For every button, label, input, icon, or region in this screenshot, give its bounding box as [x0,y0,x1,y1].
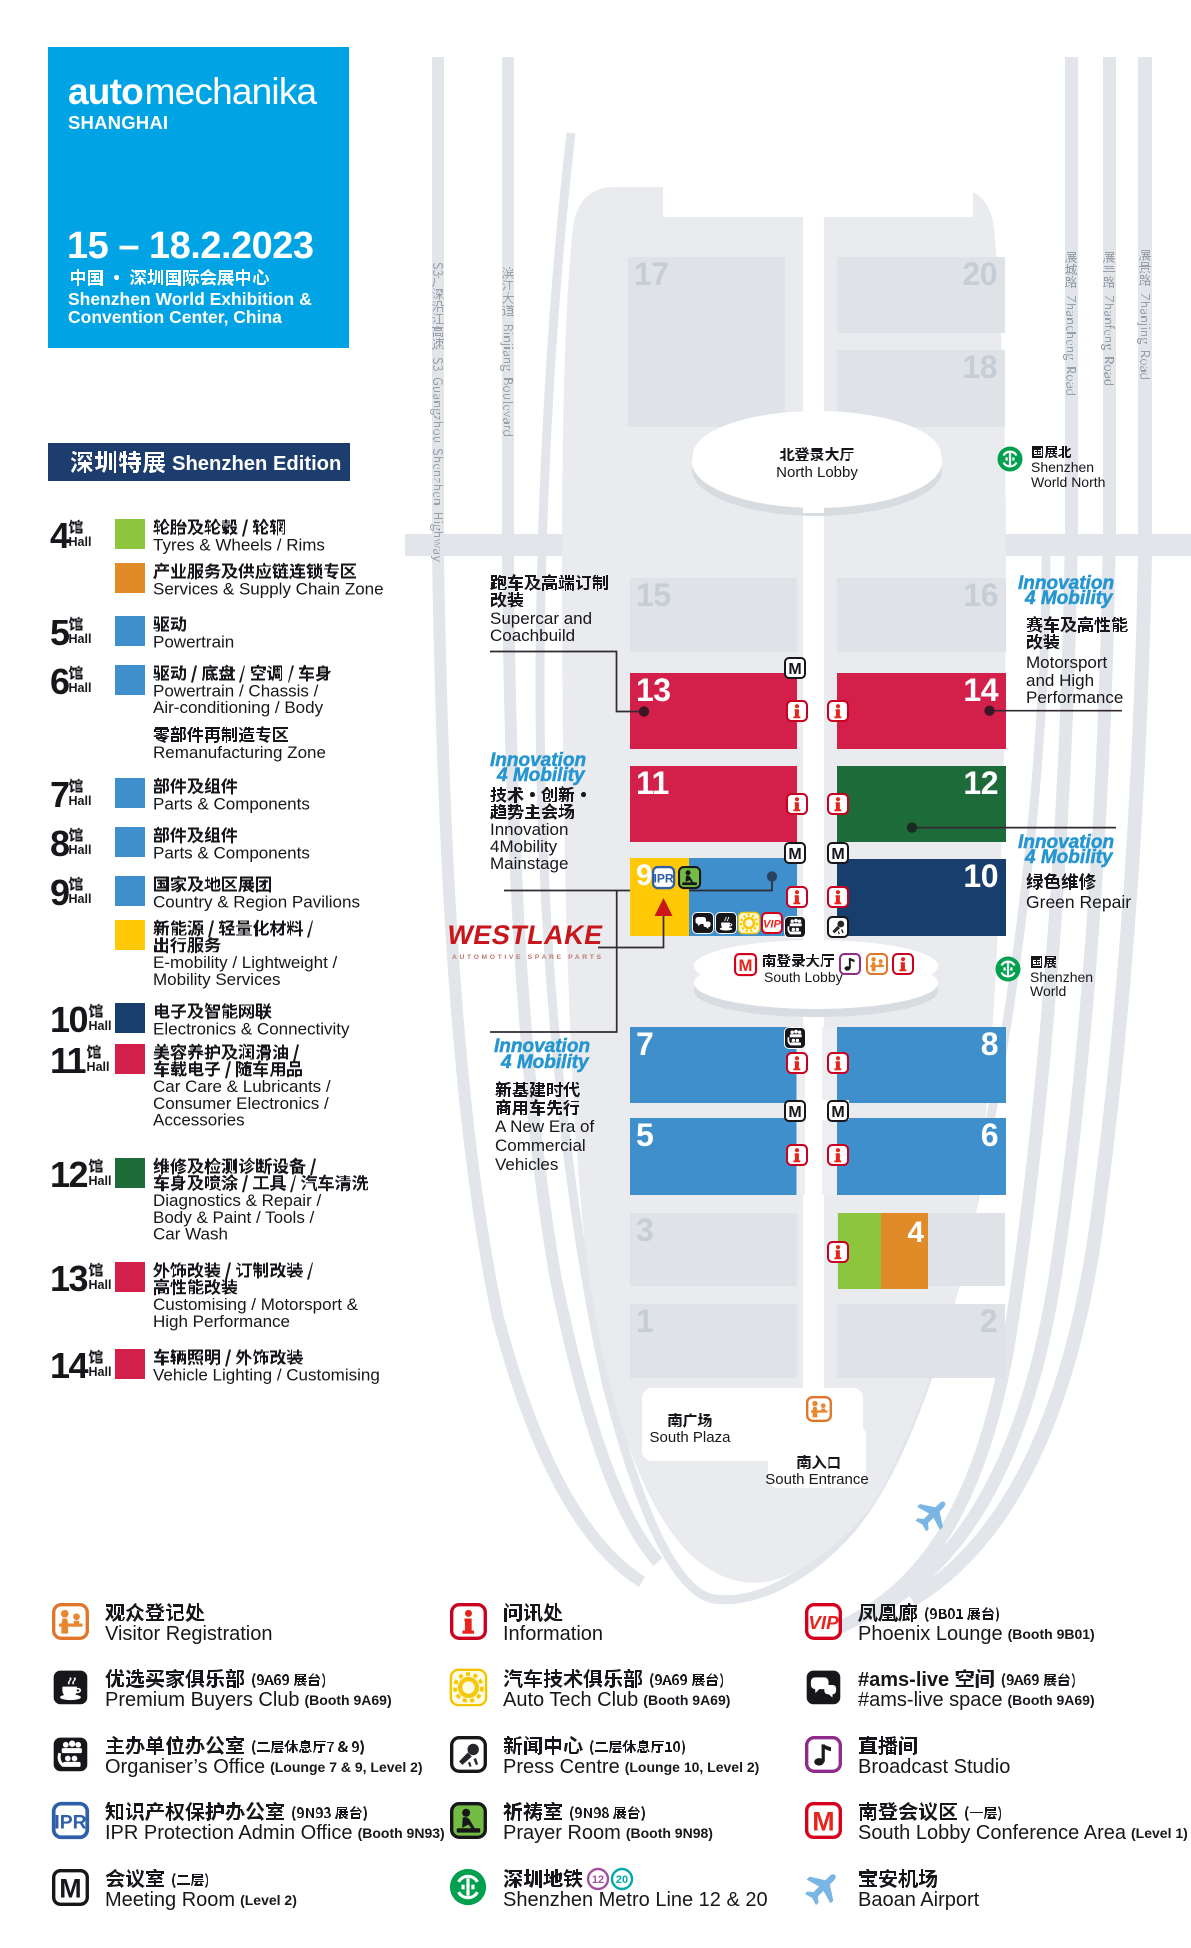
svg-text:South Lobby: South Lobby [764,969,843,985]
svg-text:Shenzhen: Shenzhen [1031,459,1094,475]
svg-text:Shenzhen Edition: Shenzhen Edition [172,453,341,475]
svg-text:Broadcast Studio: Broadcast Studio [858,1756,1010,1778]
svg-text:Powertrain: Powertrain [153,632,234,651]
svg-text:(Level 2): (Level 2) [240,1892,297,1908]
svg-text:Hall: Hall [89,1174,112,1188]
svg-text:(Booth 9N93): (Booth 9N93) [358,1825,445,1841]
svg-text:20: 20 [616,1874,628,1886]
svg-text:Mobility Services: Mobility Services [153,970,281,989]
svg-text:Hall: Hall [69,632,92,646]
svg-text:20: 20 [962,256,997,292]
svg-text:6: 6 [50,661,69,702]
svg-text:Green Repair: Green Repair [1026,892,1131,912]
svg-text:Vehicle Lighting / Customising: Vehicle Lighting / Customising [153,1365,380,1384]
svg-text:(Lounge 7 & 9, Level 2): (Lounge 7 & 9, Level 2) [270,1759,422,1775]
svg-text:4 Mobility: 4 Mobility [1024,588,1114,609]
svg-text:A New Era of: A New Era of [495,1117,594,1136]
svg-text:16: 16 [963,577,998,613]
svg-text:South Plaza: South Plaza [650,1429,732,1446]
svg-text:Accessories: Accessories [153,1111,245,1130]
svg-text:(Booth 9A69): (Booth 9A69) [305,1692,392,1708]
svg-text:11: 11 [50,1040,87,1081]
svg-text:2: 2 [980,1303,997,1339]
svg-text:Services & Supply Chain Zone: Services & Supply Chain Zone [153,579,384,598]
svg-text:6: 6 [981,1117,998,1153]
svg-text:South Entrance: South Entrance [765,1471,868,1488]
svg-text:Parts & Components: Parts & Components [153,843,310,862]
svg-text:8: 8 [981,1026,998,1062]
svg-text:(Booth 9A69): (Booth 9A69) [1008,1692,1095,1708]
svg-text:15: 15 [636,577,671,613]
svg-text:8: 8 [50,823,69,864]
svg-text:Organiser’s Office: Organiser’s Office [105,1756,265,1778]
svg-text:Commercial: Commercial [495,1136,586,1155]
svg-text:Visitor Registration: Visitor Registration [105,1623,272,1645]
svg-text:Meeting Room: Meeting Room [105,1889,235,1911]
svg-text:9: 9 [636,859,653,892]
svg-text:Convention Center, China: Convention Center, China [68,307,282,327]
svg-text:Auto Tech Club: Auto Tech Club [503,1689,638,1711]
svg-text:Coachbuild: Coachbuild [490,626,575,645]
svg-text:13: 13 [636,672,671,708]
svg-text:4 Mobility: 4 Mobility [496,765,586,786]
svg-text:12: 12 [963,765,998,801]
svg-text:Shenzhen World Exhibition &: Shenzhen World Exhibition & [68,289,312,309]
svg-text:IPR Protection Admin Office: IPR Protection Admin Office [105,1822,353,1844]
svg-text:4 Mobility: 4 Mobility [1024,847,1114,868]
svg-text:Hall: Hall [89,1278,112,1292]
svg-text:15 – 18.2.2023: 15 – 18.2.2023 [67,225,314,267]
svg-text:(Lounge 10, Level 2): (Lounge 10, Level 2) [625,1759,760,1775]
svg-text:Hall: Hall [87,1060,110,1074]
svg-text:10: 10 [963,858,998,894]
svg-text:Shenzhen Metro Line 12 & 20: Shenzhen Metro Line 12 & 20 [503,1889,768,1911]
svg-text:3: 3 [636,1212,653,1248]
svg-text:Hall: Hall [69,892,92,906]
svg-text:Car Wash: Car Wash [153,1225,228,1244]
svg-text:14: 14 [50,1345,89,1386]
svg-text:7: 7 [636,1026,653,1062]
svg-text:Prayer Room: Prayer Room [503,1822,621,1844]
svg-text:9: 9 [50,872,69,913]
svg-text:Motorsport: Motorsport [1026,653,1108,672]
svg-text:12: 12 [50,1154,88,1195]
svg-text:11: 11 [636,765,669,801]
svg-text:Hall: Hall [69,843,92,857]
svg-text:Remanufacturing Zone: Remanufacturing Zone [153,743,326,762]
svg-text:(Booth 9N98): (Booth 9N98) [626,1825,713,1841]
svg-text:(Booth 9A69): (Booth 9A69) [643,1692,730,1708]
svg-text:WESTLAKE: WESTLAKE [445,919,606,950]
svg-text:17: 17 [634,256,669,292]
svg-text:SHANGHAI: SHANGHAI [68,112,168,133]
svg-text:High Performance: High Performance [153,1312,290,1331]
svg-text:Hall: Hall [89,1019,112,1033]
svg-text:Air-conditioning / Body: Air-conditioning / Body [153,698,324,717]
svg-text:4: 4 [50,515,70,556]
svg-text:Parts & Components: Parts & Components [153,794,310,813]
svg-text:North Lobby: North Lobby [776,464,858,481]
svg-text:5: 5 [50,612,70,653]
svg-text:13: 13 [50,1258,88,1299]
svg-text:Mainstage: Mainstage [490,854,568,873]
svg-text:Information: Information [503,1623,603,1645]
svg-text:#ams-live space: #ams-live space [858,1689,1003,1711]
svg-text:Hall: Hall [69,681,92,695]
svg-text:(Booth 9B01): (Booth 9B01) [1008,1626,1095,1642]
svg-text:18: 18 [962,349,997,385]
svg-text:Press Centre: Press Centre [503,1756,620,1778]
svg-text:South Lobby Conference Area: South Lobby Conference Area [858,1822,1127,1844]
svg-text:AUTOMOTIVE SPARE PARTS: AUTOMOTIVE SPARE PARTS [452,954,604,961]
svg-text:14: 14 [963,672,998,708]
svg-text:Hall: Hall [69,535,92,549]
svg-text:auto: auto [68,71,143,112]
svg-text:Vehicles: Vehicles [495,1155,558,1174]
svg-text:5: 5 [636,1117,653,1153]
svg-text:World: World [1030,983,1066,999]
svg-text:Electronics & Connectivity: Electronics & Connectivity [153,1019,350,1038]
svg-text:(Level 1): (Level 1) [1131,1825,1188,1841]
svg-text:Baoan Airport: Baoan Airport [858,1889,980,1911]
svg-text:4: 4 [907,1216,924,1249]
svg-text:World North: World North [1031,474,1105,490]
svg-text:Country & Region Pavilions: Country & Region Pavilions [153,892,360,911]
svg-text:7: 7 [50,774,69,815]
svg-text:4 Mobility: 4 Mobility [500,1052,590,1073]
svg-text:#ams-live: #ams-live [858,1669,949,1691]
svg-text:Performance: Performance [1026,688,1123,707]
svg-text:Tyres & Wheels / Rims: Tyres & Wheels / Rims [153,535,325,554]
svg-text:Phoenix Lounge: Phoenix Lounge [858,1623,1003,1645]
svg-text:12: 12 [592,1874,604,1886]
svg-text:1: 1 [636,1303,653,1339]
svg-text:10: 10 [50,999,88,1040]
svg-text:Premium Buyers Club: Premium Buyers Club [105,1689,300,1711]
svg-text:Hall: Hall [89,1365,112,1379]
svg-text:mechanika: mechanika [145,71,318,112]
svg-text:Hall: Hall [69,794,92,808]
